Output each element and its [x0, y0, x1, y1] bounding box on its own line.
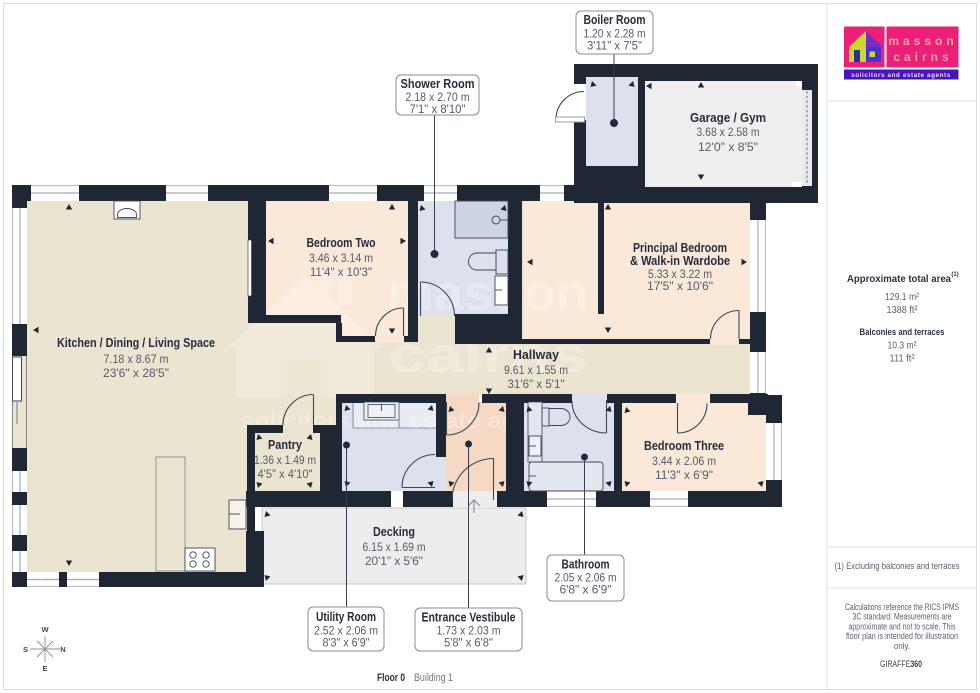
svg-text:Boiler Room: Boiler Room	[584, 13, 646, 27]
svg-text:5'8" x 6'8": 5'8" x 6'8"	[444, 638, 493, 650]
svg-text:Hallway: Hallway	[513, 348, 559, 362]
svg-text:Shower Room: Shower Room	[401, 77, 475, 91]
svg-text:cairns: cairns	[893, 50, 952, 64]
svg-text:GIRAFFE360: GIRAFFE360	[880, 659, 922, 669]
svg-text:Kitchen / Dining / Living Spac: Kitchen / Dining / Living Space	[57, 336, 215, 350]
svg-text:17'5" x 10'6": 17'5" x 10'6"	[647, 281, 713, 293]
svg-text:10.3 m²: 10.3 m²	[888, 341, 918, 352]
svg-text:3.68 x 2.58 m: 3.68 x 2.58 m	[697, 127, 760, 139]
svg-text:Decking: Decking	[373, 525, 415, 539]
svg-text:11'4" x 10'3": 11'4" x 10'3"	[310, 267, 372, 279]
svg-text:Balconies and terraces: Balconies and terraces	[860, 327, 945, 338]
svg-text:N: N	[60, 645, 65, 654]
svg-text:Utility Room: Utility Room	[316, 610, 376, 624]
svg-text:masson: masson	[888, 34, 957, 48]
svg-text:7.18 x 8.67 m: 7.18 x 8.67 m	[104, 354, 169, 366]
svg-text:1.20 x 2.28 m: 1.20 x 2.28 m	[584, 29, 646, 41]
svg-text:approximate and not to scale.: approximate and not to scale. This	[849, 621, 956, 631]
svg-text:1388 ft²: 1388 ft²	[887, 305, 919, 316]
svg-text:12'0" x 8'5": 12'0" x 8'5"	[698, 142, 758, 154]
svg-text:Principal Bedroom: Principal Bedroom	[633, 241, 727, 255]
svg-text:(1): (1)	[951, 272, 958, 278]
svg-text:& Walk-in Wardobe: & Walk-in Wardobe	[630, 254, 730, 268]
svg-text:Building 1: Building 1	[414, 672, 453, 684]
svg-text:7'1" x 8'10": 7'1" x 8'10"	[410, 104, 466, 116]
svg-text:23'6" x 28'5": 23'6" x 28'5"	[103, 368, 169, 380]
svg-text:6'8" x 6'9": 6'8" x 6'9"	[560, 585, 612, 597]
svg-text:Bedroom Two: Bedroom Two	[307, 236, 376, 250]
svg-text:2.05 x 2.06 m: 2.05 x 2.06 m	[555, 573, 617, 585]
svg-text:3'11" x 7'5": 3'11" x 7'5"	[587, 41, 642, 53]
svg-text:5.33 x 3.22 m: 5.33 x 3.22 m	[648, 269, 712, 281]
svg-text:129.1 m²: 129.1 m²	[885, 292, 920, 303]
svg-text:floor plan is intended for ill: floor plan is intended for illustration	[846, 631, 958, 641]
svg-text:W: W	[41, 625, 49, 634]
svg-text:20'1" x 5'6": 20'1" x 5'6"	[365, 556, 423, 568]
svg-text:Floor 0: Floor 0	[377, 672, 405, 684]
svg-text:2.52 x 2.06 m: 2.52 x 2.06 m	[314, 626, 378, 638]
svg-text:solicitors and estate agents: solicitors and estate agents	[851, 72, 951, 79]
svg-text:111 ft²: 111 ft²	[890, 354, 916, 365]
svg-text:S: S	[23, 645, 28, 654]
svg-text:1.36 x 1.49 m: 1.36 x 1.49 m	[254, 455, 316, 467]
svg-text:8'3" x 6'9": 8'3" x 6'9"	[323, 638, 370, 650]
svg-text:11'3" x 6'9": 11'3" x 6'9"	[655, 470, 713, 482]
svg-text:3C standard. Measurements are: 3C standard. Measurements are	[853, 612, 952, 622]
svg-text:4'5" x 4'10": 4'5" x 4'10"	[258, 469, 313, 481]
svg-text:E: E	[42, 664, 47, 673]
svg-text:Bathroom: Bathroom	[562, 558, 610, 572]
svg-text:9.61 x 1.55 m: 9.61 x 1.55 m	[504, 365, 568, 377]
svg-text:31'6" x 5'1": 31'6" x 5'1"	[508, 379, 565, 391]
svg-text:Approximate total area: Approximate total area	[847, 273, 951, 285]
svg-text:2.18 x 2.70 m: 2.18 x 2.70 m	[406, 92, 470, 104]
svg-text:Calculations reference the RIC: Calculations reference the RICS IPMS	[845, 602, 959, 612]
svg-text:only.: only.	[894, 641, 910, 651]
svg-text:Pantry: Pantry	[268, 438, 302, 452]
svg-text:Bedroom Three: Bedroom Three	[644, 439, 724, 453]
svg-text:Entrance Vestibule: Entrance Vestibule	[422, 611, 516, 625]
svg-text:(1) Excluding balconies and te: (1) Excluding balconies and terraces	[835, 561, 960, 571]
svg-text:Garage / Gym: Garage / Gym	[690, 111, 766, 125]
svg-text:3.44 x 2.06 m: 3.44 x 2.06 m	[652, 456, 716, 468]
svg-text:6.15 x 1.69 m: 6.15 x 1.69 m	[363, 542, 426, 554]
svg-text:1.73 x 2.03 m: 1.73 x 2.03 m	[437, 626, 501, 638]
svg-text:3.46 x 3.14 m: 3.46 x 3.14 m	[309, 253, 373, 265]
